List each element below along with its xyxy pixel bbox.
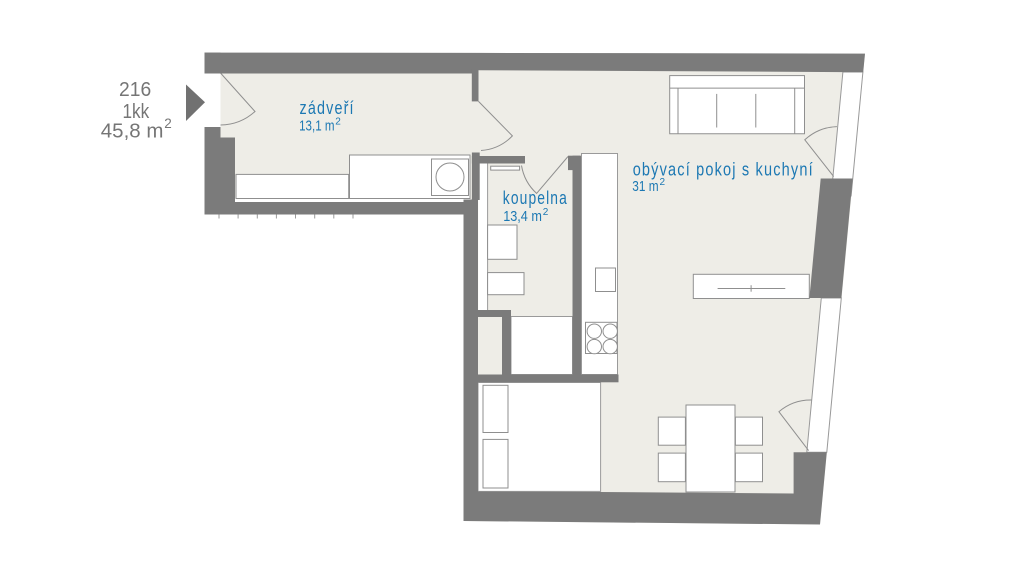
svg-text:2: 2 [335,117,341,128]
svg-text:koupelna: koupelna [503,187,568,208]
svg-text:zádveří: zádveří [300,97,355,118]
svg-text:13,4 m: 13,4 m [503,208,542,225]
svg-text:31 m: 31 m [632,178,658,195]
svg-text:45,8 m: 45,8 m [101,119,164,142]
svg-text:2: 2 [164,116,172,131]
svg-text:216: 216 [119,78,151,101]
svg-text:13,1 m: 13,1 m [299,118,334,135]
svg-text:2: 2 [543,207,549,218]
svg-text:2: 2 [660,177,666,188]
